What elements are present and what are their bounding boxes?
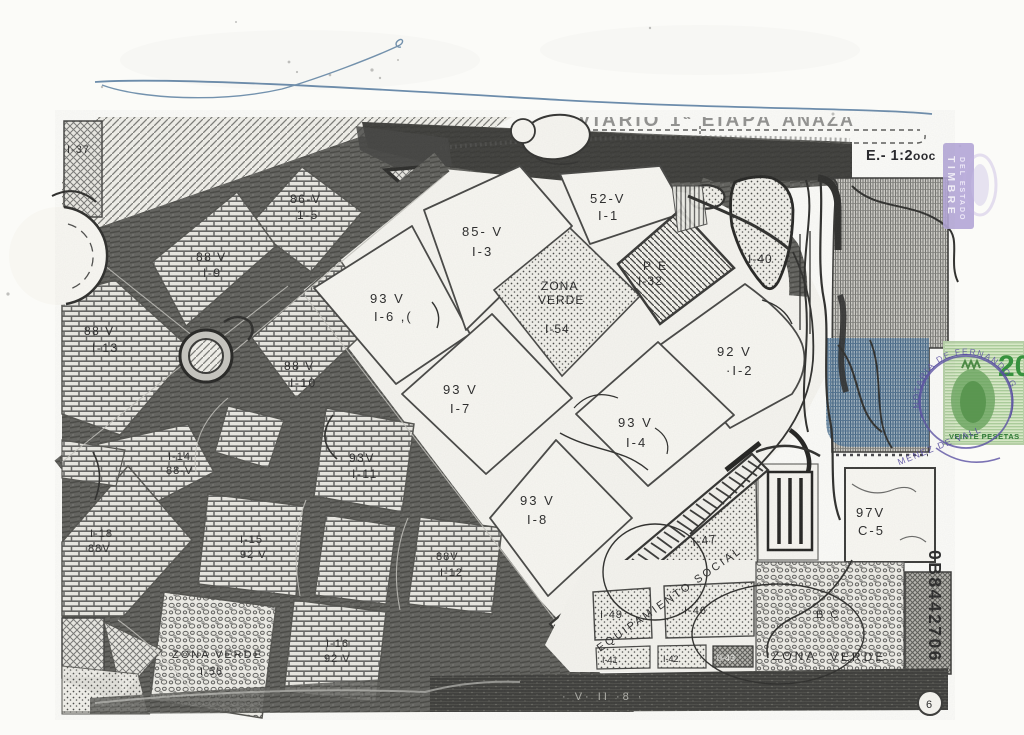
svg-text:DEL ESTADO: DEL ESTADO <box>958 157 965 221</box>
